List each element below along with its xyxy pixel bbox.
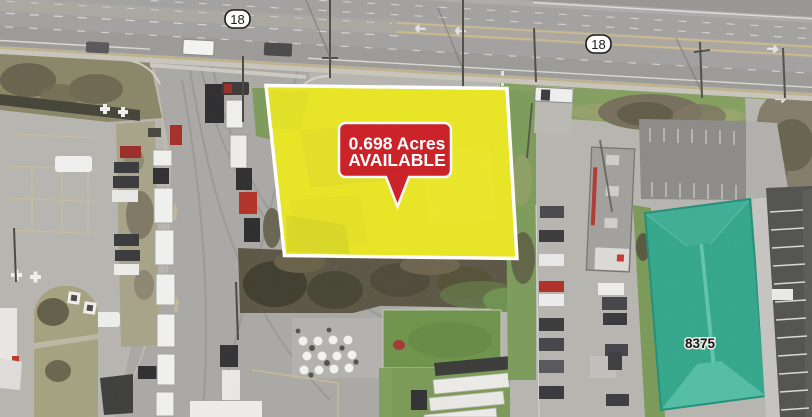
svg-text:18: 18 bbox=[591, 37, 605, 52]
svg-text:8375: 8375 bbox=[685, 336, 716, 351]
svg-text:18: 18 bbox=[230, 12, 244, 27]
svg-text:AVAILABLE: AVAILABLE bbox=[348, 150, 446, 170]
